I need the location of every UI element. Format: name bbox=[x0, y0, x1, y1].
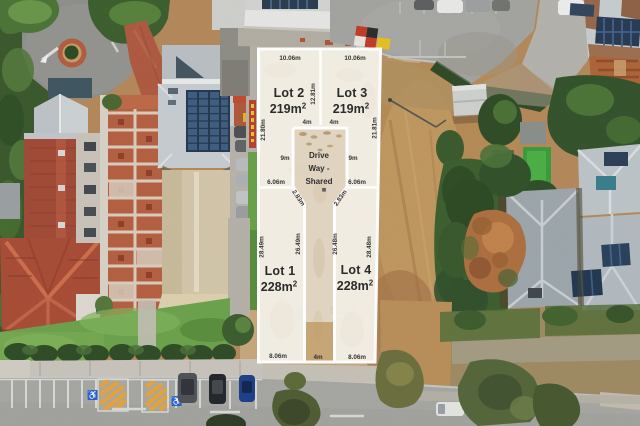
svg-text:Lot 4: Lot 4 bbox=[341, 263, 372, 277]
svg-text:Way -: Way - bbox=[308, 164, 329, 173]
svg-text:▦: ▦ bbox=[322, 187, 327, 192]
svg-text:6.06m: 6.06m bbox=[267, 179, 285, 186]
svg-text:9m: 9m bbox=[280, 155, 290, 162]
svg-text:9m: 9m bbox=[348, 155, 358, 162]
svg-text:219m2: 219m2 bbox=[270, 102, 307, 117]
svg-text:10.06m: 10.06m bbox=[279, 55, 301, 62]
svg-text:21.81m: 21.81m bbox=[372, 117, 379, 139]
svg-text:6.06m: 6.06m bbox=[348, 179, 366, 186]
svg-text:10.06m: 10.06m bbox=[344, 55, 366, 62]
svg-text:Drive: Drive bbox=[309, 151, 330, 160]
svg-text:228m2: 228m2 bbox=[261, 280, 298, 295]
svg-text:Lot 3: Lot 3 bbox=[337, 86, 368, 100]
svg-text:8.06m: 8.06m bbox=[348, 354, 366, 361]
svg-text:21.80m: 21.80m bbox=[260, 119, 267, 141]
svg-text:26.49m: 26.49m bbox=[295, 233, 302, 255]
svg-text:Shared: Shared bbox=[305, 177, 332, 186]
svg-text:4m: 4m bbox=[329, 119, 339, 126]
svg-text:Lot 2: Lot 2 bbox=[274, 86, 305, 100]
svg-text:28.48m: 28.48m bbox=[366, 236, 373, 258]
svg-text:26.48m: 26.48m bbox=[332, 233, 339, 255]
svg-text:219m2: 219m2 bbox=[333, 102, 370, 117]
svg-text:228m2: 228m2 bbox=[337, 279, 374, 294]
svg-text:28.49m: 28.49m bbox=[259, 236, 266, 258]
svg-text:12.81m: 12.81m bbox=[310, 83, 317, 105]
svg-text:Lot 1: Lot 1 bbox=[265, 264, 296, 278]
svg-text:4m: 4m bbox=[302, 119, 312, 126]
svg-text:4m: 4m bbox=[313, 354, 323, 361]
svg-text:8.06m: 8.06m bbox=[269, 353, 287, 360]
